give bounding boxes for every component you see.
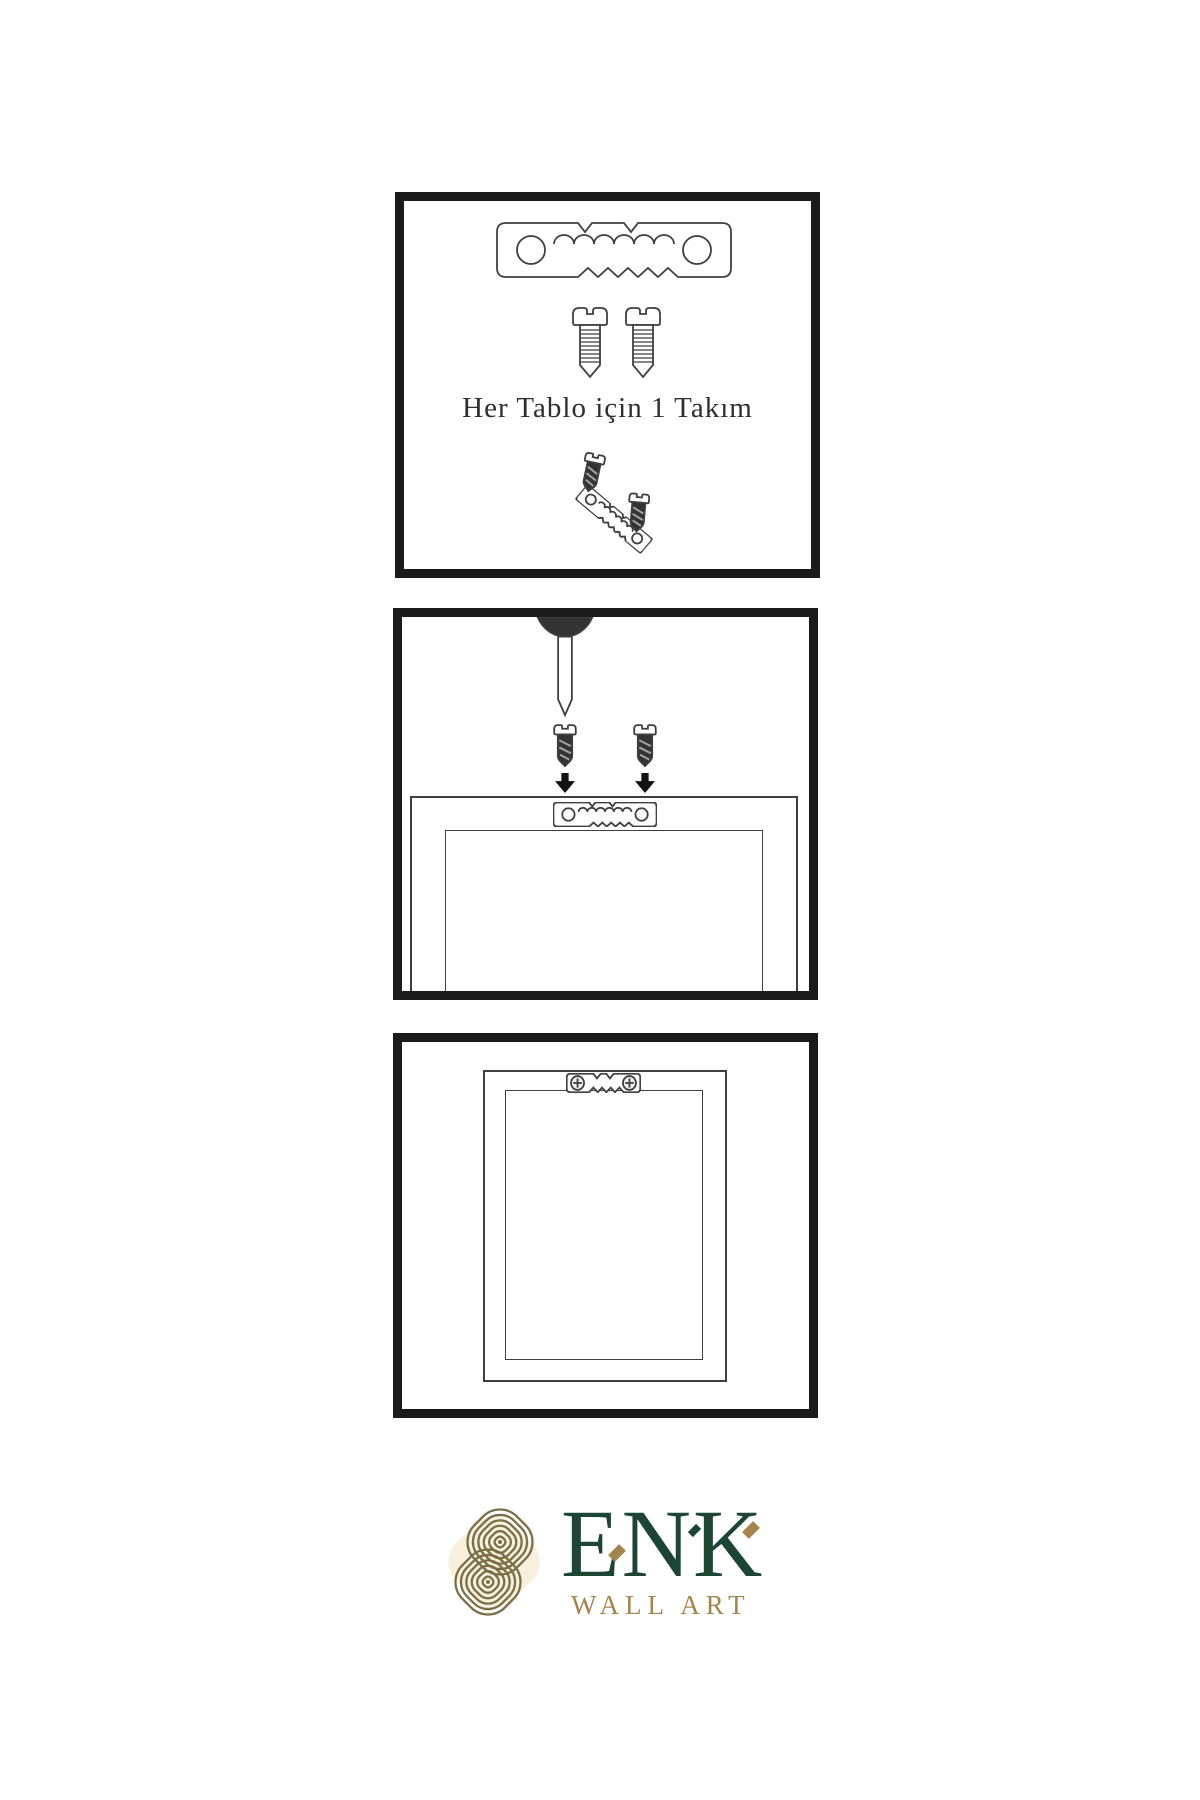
panel-wall-installation [393,608,818,1000]
instruction-sheet: Her Tablo için 1 Takım [0,0,1200,1800]
brand-name: ENK [561,1496,764,1592]
sawtooth-hanger-icon [496,222,732,278]
panel-hardware-set: Her Tablo için 1 Takım [395,192,820,578]
panel-caption: Her Tablo için 1 Takım [404,392,811,425]
screw-icon [570,305,610,383]
frame-back-opening [505,1090,703,1360]
dark-screw-icon [552,723,578,769]
frame-back-opening [445,830,763,1000]
panel-hanger-mounted-frame [393,1033,818,1418]
nail-icon [535,617,595,719]
down-arrow-icon [554,773,576,793]
mounted-sawtooth-hanger-icon [566,1073,641,1093]
interlaced-knot-icon [437,1498,553,1625]
down-arrow-icon [634,773,656,793]
dark-screw-icon [576,450,608,496]
dark-screw-icon [632,723,658,769]
brand-subtitle: WALL ART [571,1590,751,1621]
dark-screw-icon [624,491,652,535]
screw-icon [623,305,663,383]
sawtooth-hanger-icon [553,802,657,827]
